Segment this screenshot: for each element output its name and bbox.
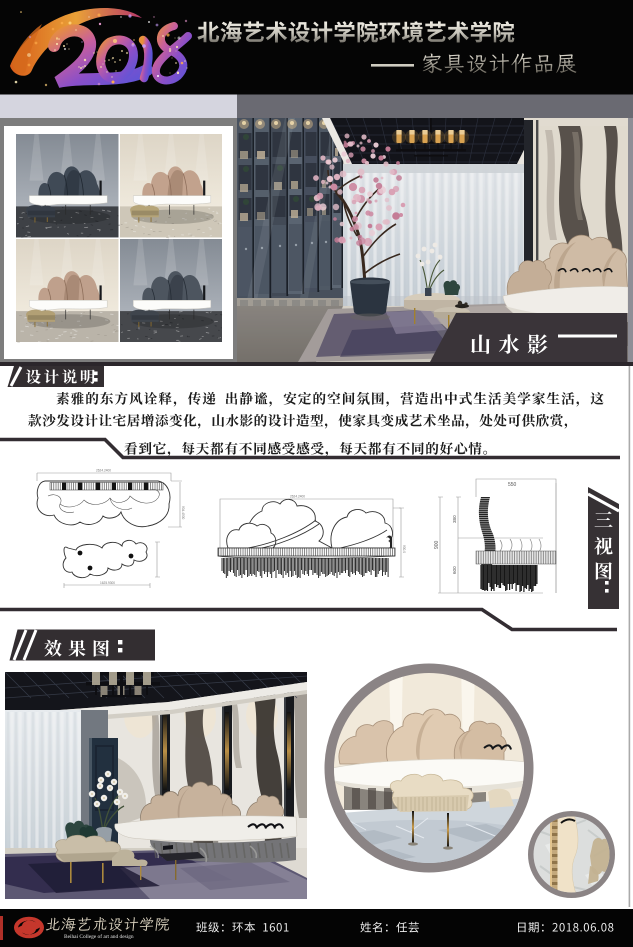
svg-text:380: 380 xyxy=(452,515,457,523)
svg-text:550: 550 xyxy=(508,482,517,488)
svg-text:900: 900 xyxy=(434,540,440,549)
svg-text:600: 600 xyxy=(452,566,457,574)
svg-text:2624.2400: 2624.2400 xyxy=(96,469,111,473)
svg-text:2624.2400: 2624.2400 xyxy=(290,495,305,499)
svg-text:1625.9300: 1625.9300 xyxy=(100,581,115,585)
svg-text:Beihai College of art and desi: Beihai College of art and design xyxy=(64,933,134,940)
svg-text:904.4500: 904.4500 xyxy=(181,506,185,520)
svg-text:900.0: 900.0 xyxy=(402,545,406,553)
